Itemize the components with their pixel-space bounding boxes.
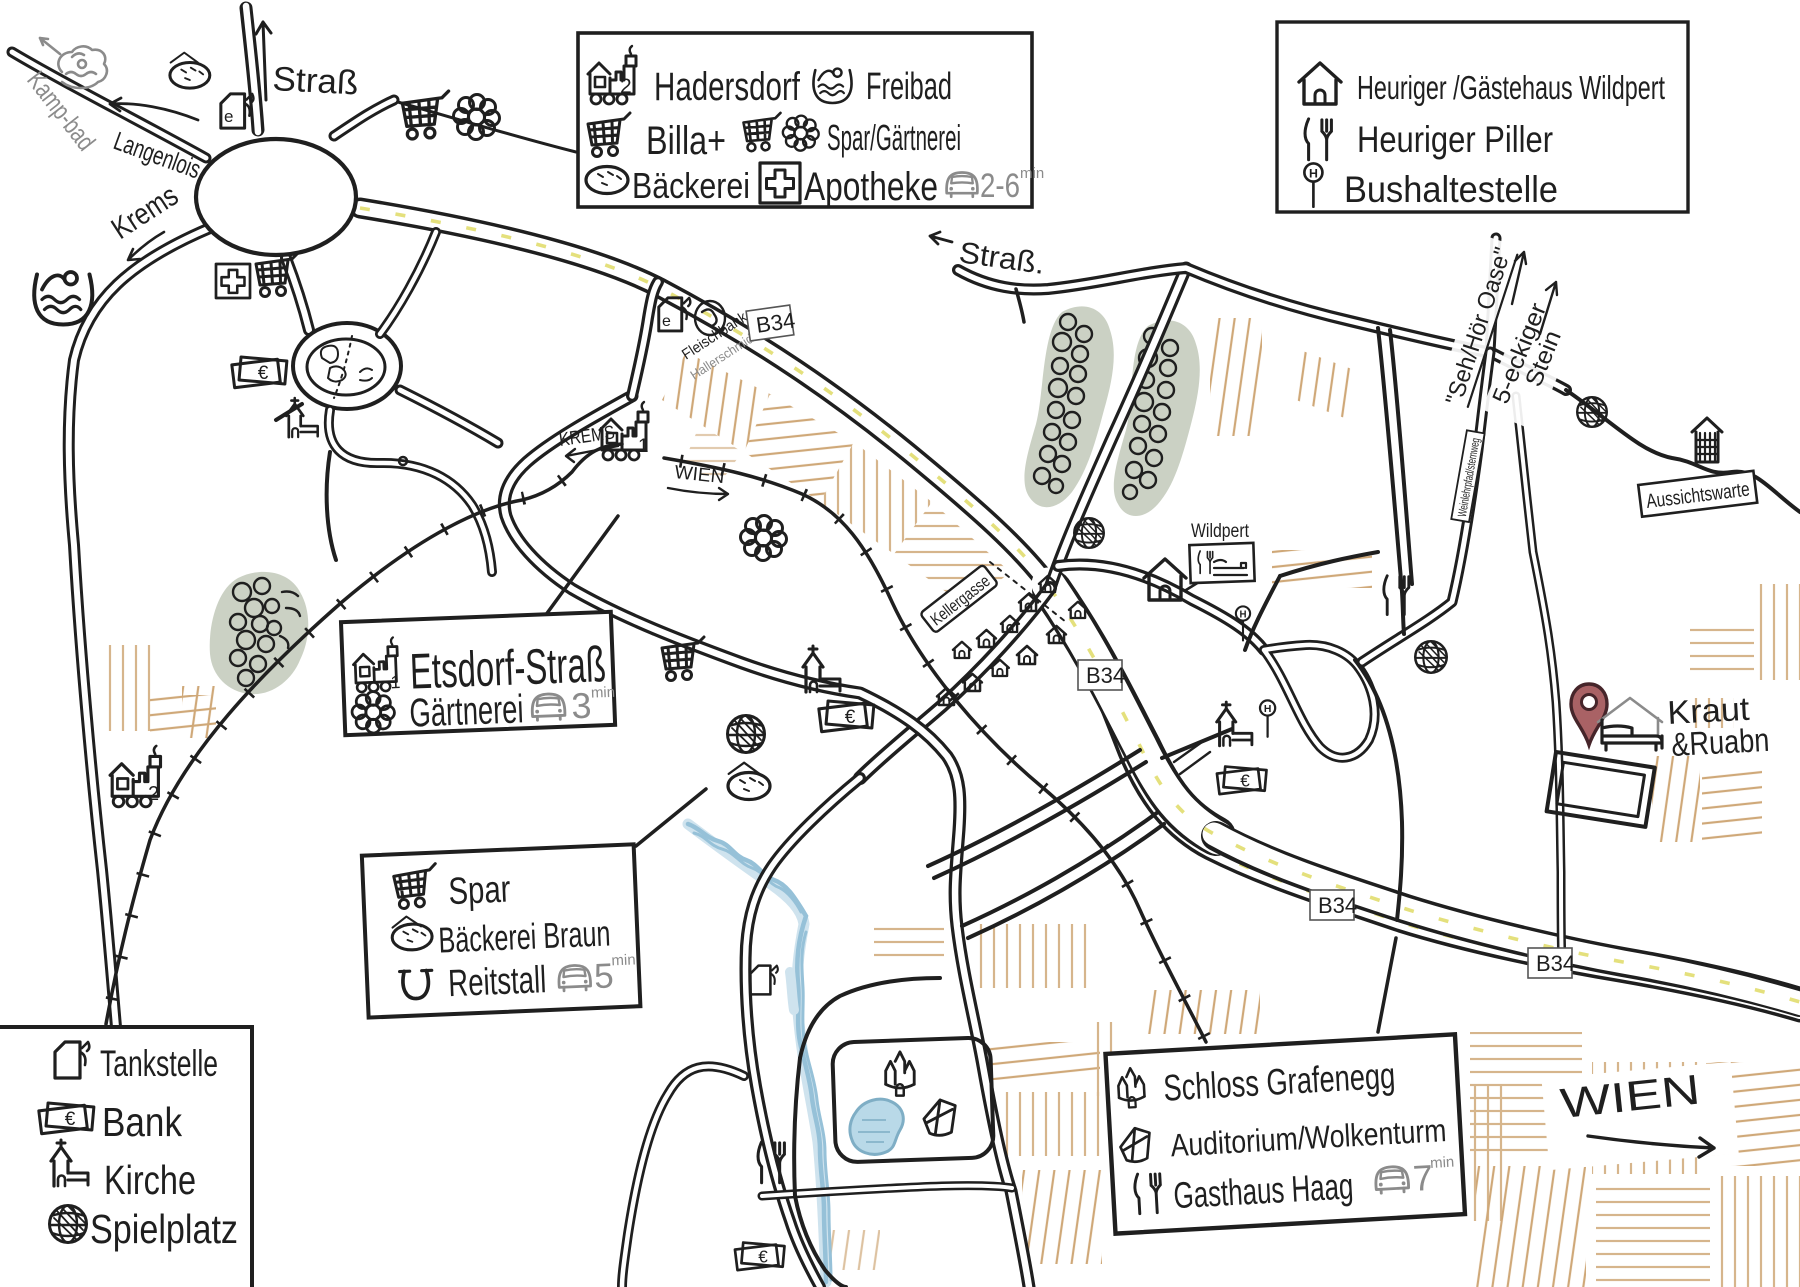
svg-text:Wildpert: Wildpert xyxy=(1191,521,1250,542)
svg-text:B34: B34 xyxy=(1318,893,1357,918)
svg-text:Spielplatz: Spielplatz xyxy=(90,1206,238,1252)
svg-text:Spar: Spar xyxy=(448,869,512,914)
svg-text:Reitstall: Reitstall xyxy=(447,959,547,1005)
svg-text:Spar/Gärtnerei: Spar/Gärtnerei xyxy=(827,117,961,158)
svg-text:Bäckerei Braun: Bäckerei Braun xyxy=(438,912,612,960)
svg-text:min: min xyxy=(1020,165,1044,182)
svg-text:Apotheke: Apotheke xyxy=(804,165,938,209)
svg-text:e: e xyxy=(224,107,233,126)
svg-text:Straß: Straß xyxy=(272,60,360,102)
svg-text:Bank: Bank xyxy=(102,1099,182,1145)
svg-text:Heuriger Piller: Heuriger Piller xyxy=(1357,119,1553,160)
svg-text:Tankstelle: Tankstelle xyxy=(100,1043,218,1084)
svg-text:Bäckerei: Bäckerei xyxy=(632,165,750,206)
svg-text:2: 2 xyxy=(148,783,159,805)
svg-text:e: e xyxy=(662,313,671,330)
svg-text:B34: B34 xyxy=(1086,663,1125,688)
svg-text:Hadersdorf: Hadersdorf xyxy=(654,65,801,109)
svg-text:Kirche: Kirche xyxy=(104,1157,196,1203)
svg-text:Heuriger /Gästehaus Wildpert: Heuriger /Gästehaus Wildpert xyxy=(1357,69,1665,106)
svg-text:2: 2 xyxy=(620,75,632,98)
svg-text:Billa+: Billa+ xyxy=(646,119,726,163)
svg-text:Freibad: Freibad xyxy=(866,66,952,108)
svg-text:Bushaltestelle: Bushaltestelle xyxy=(1344,169,1558,210)
svg-text:&Ruabn: &Ruabn xyxy=(1670,721,1770,763)
svg-text:min: min xyxy=(591,684,616,702)
svg-text:B34: B34 xyxy=(1536,951,1575,976)
svg-text:min: min xyxy=(1430,1154,1455,1172)
svg-text:2-6: 2-6 xyxy=(980,167,1020,205)
svg-text:1: 1 xyxy=(390,672,401,692)
svg-text:3: 3 xyxy=(571,685,593,727)
svg-text:min: min xyxy=(611,951,636,969)
svg-text:1: 1 xyxy=(638,436,649,457)
svg-text:Gärtnerei: Gärtnerei xyxy=(409,687,525,735)
